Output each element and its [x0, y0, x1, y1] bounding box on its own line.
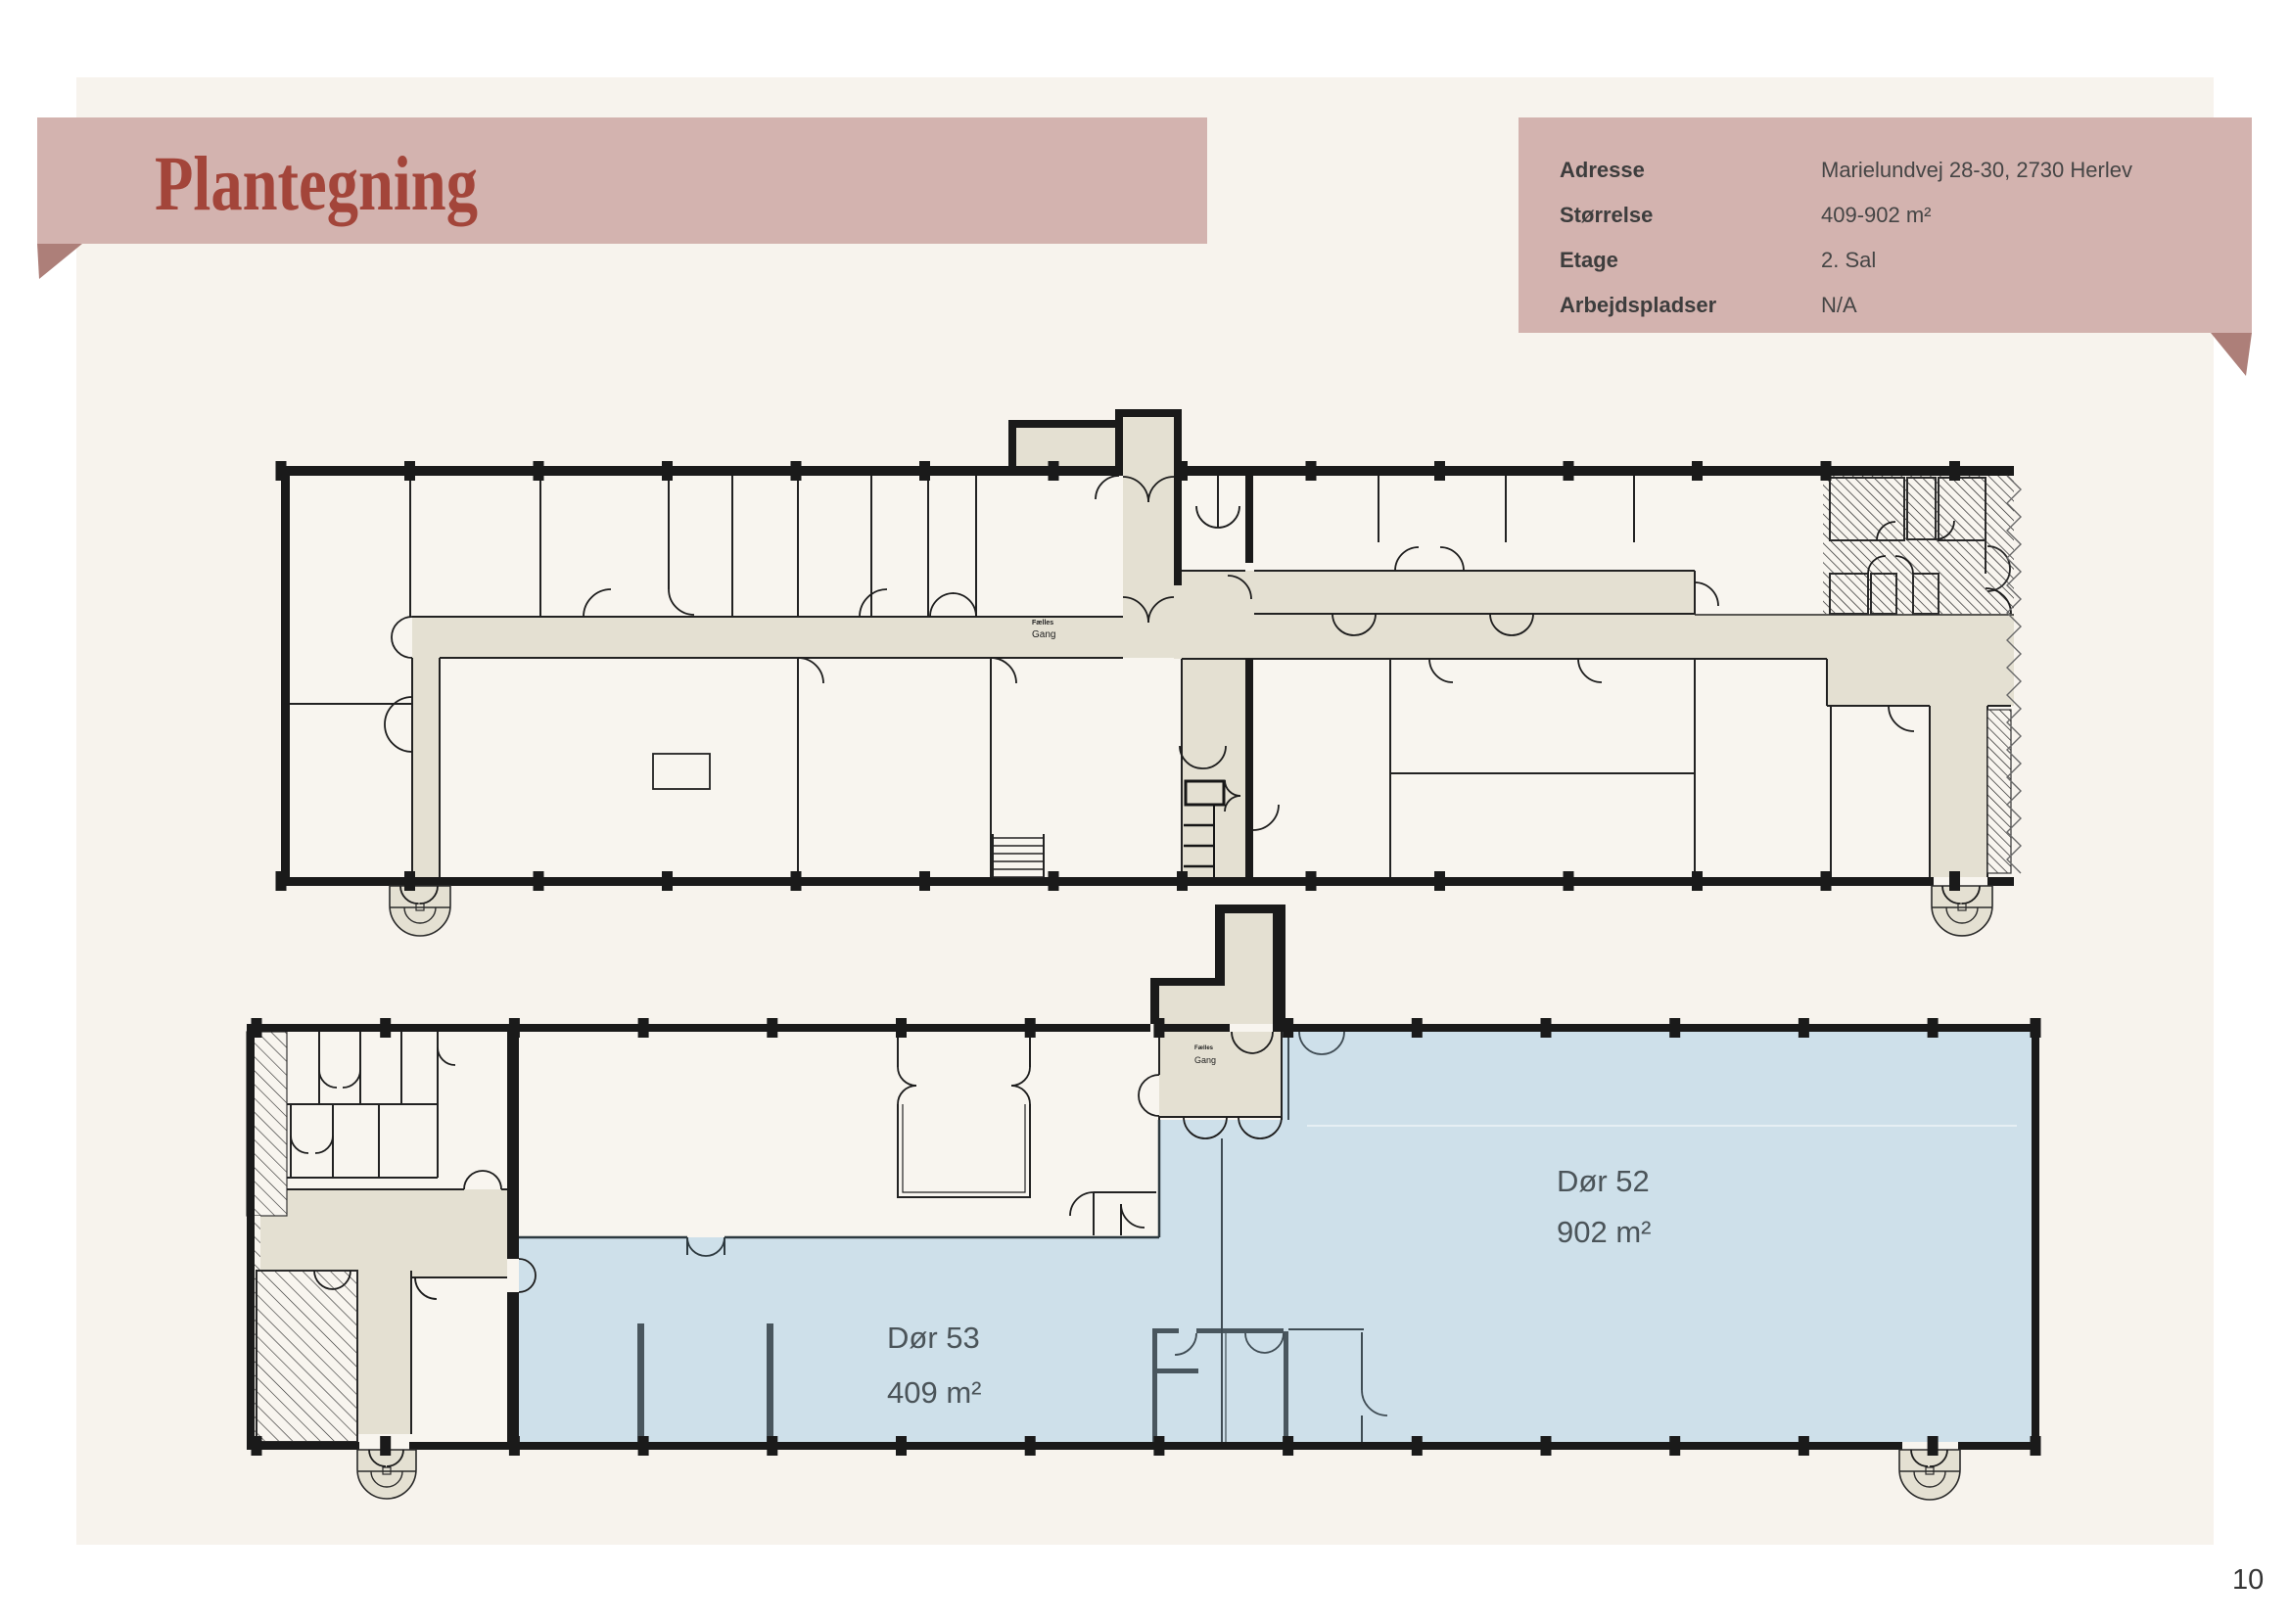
svg-text:Gang: Gang [1194, 1055, 1216, 1065]
svg-text:Fælles: Fælles [1032, 620, 1053, 626]
svg-text:Adresse: Adresse [1560, 158, 1645, 182]
svg-text:10: 10 [2232, 1564, 2264, 1596]
svg-text:N/A: N/A [1821, 293, 1857, 317]
svg-text:Fælles: Fælles [1194, 1045, 1214, 1051]
svg-text:Dør 53: Dør 53 [887, 1321, 980, 1355]
svg-text:Plantegning: Plantegning [155, 142, 478, 227]
svg-text:Gang: Gang [1032, 629, 1055, 640]
svg-text:Dør 52: Dør 52 [1557, 1164, 1650, 1198]
svg-text:2. Sal: 2. Sal [1821, 248, 1876, 272]
svg-text:Størrelse: Størrelse [1560, 203, 1653, 227]
svg-text:902 m²: 902 m² [1557, 1215, 1651, 1249]
svg-text:Marielundvej 28-30, 2730 Herle: Marielundvej 28-30, 2730 Herlev [1821, 158, 2132, 182]
svg-text:Arbejdspladser: Arbejdspladser [1560, 293, 1717, 317]
svg-text:Etage: Etage [1560, 248, 1618, 272]
svg-text:409 m²: 409 m² [887, 1375, 981, 1410]
svg-text:409-902 m²: 409-902 m² [1821, 203, 1932, 227]
